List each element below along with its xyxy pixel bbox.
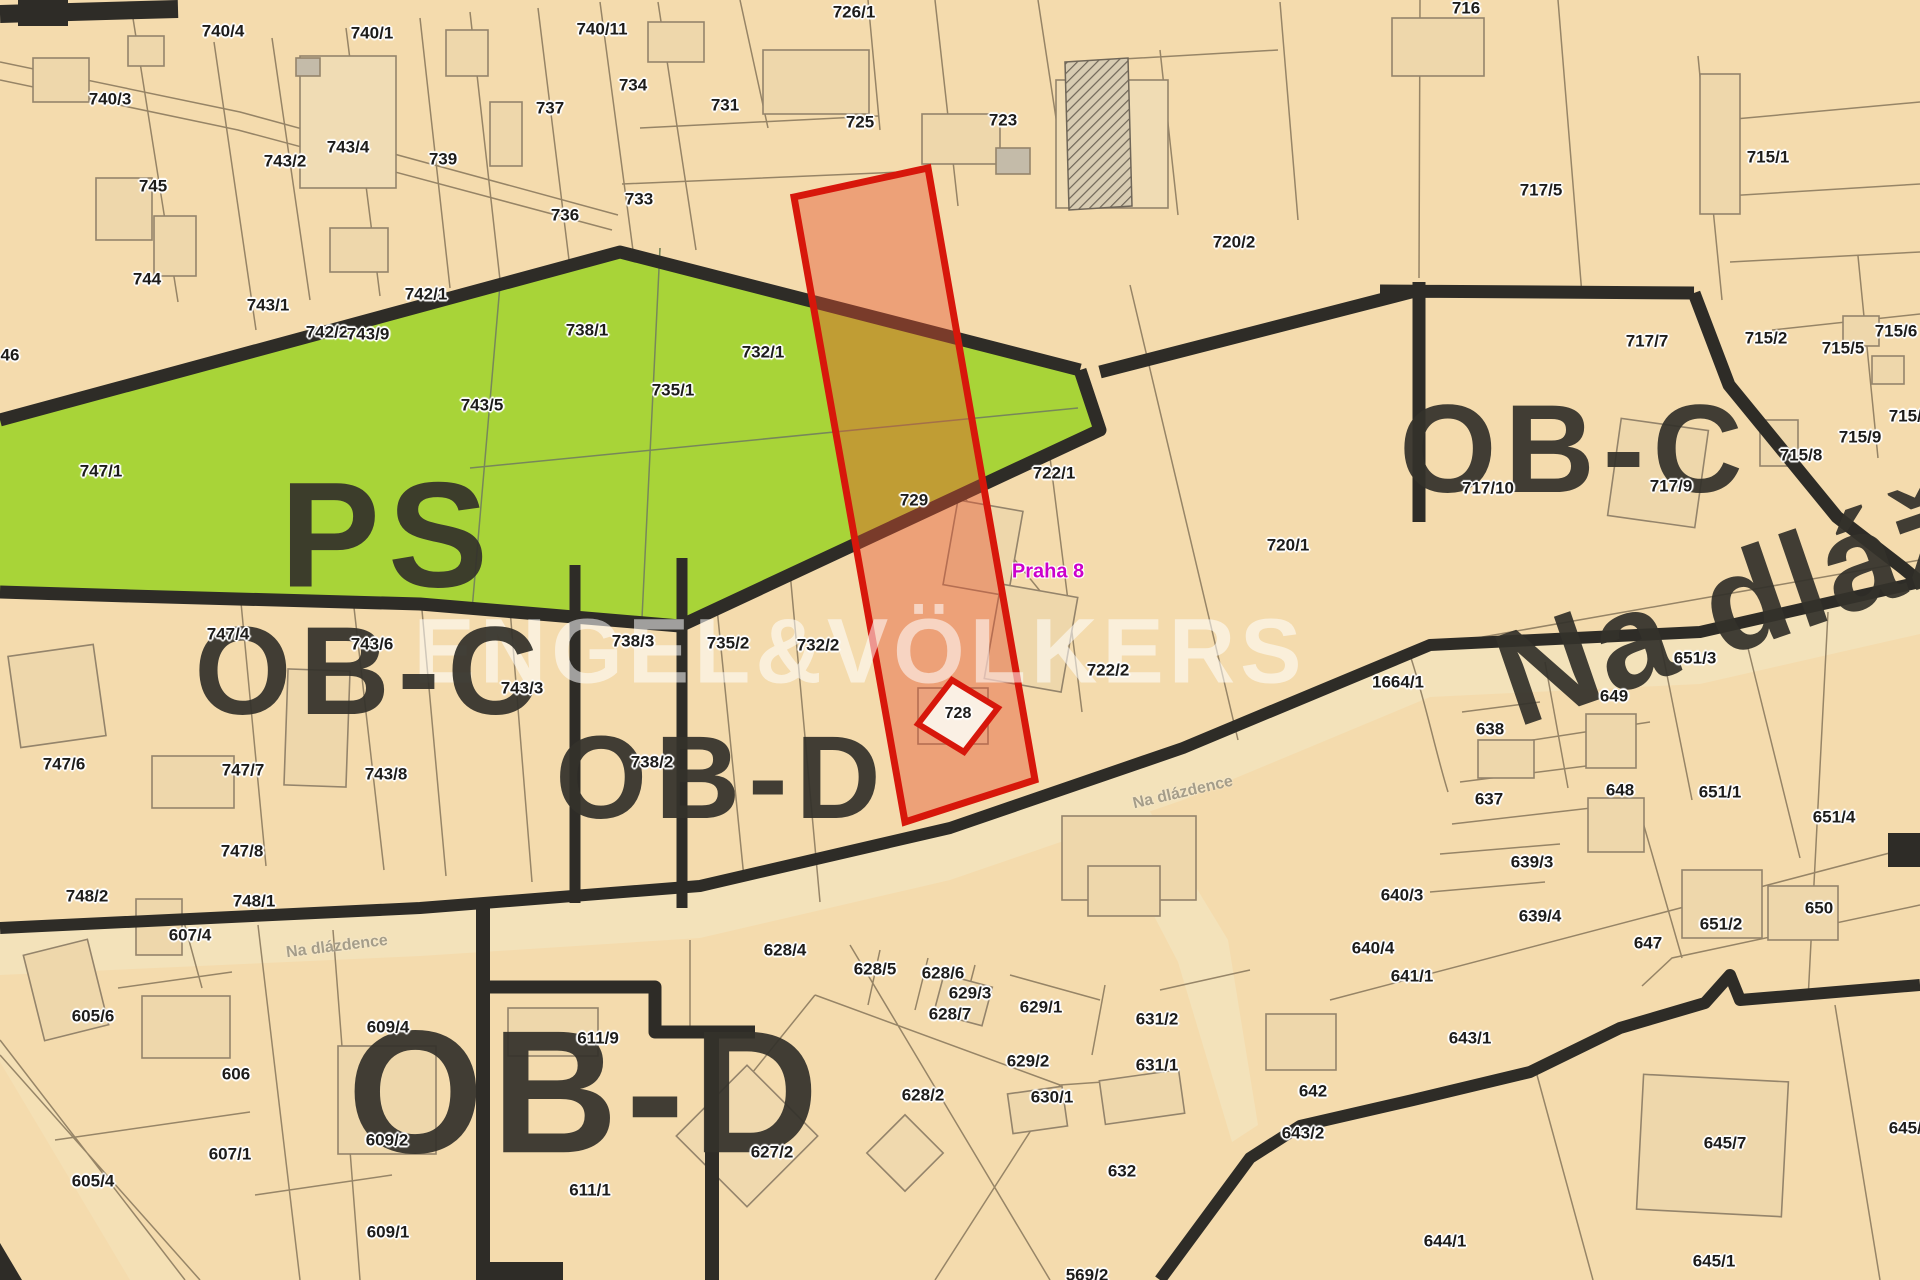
parcel-label: 609/2 xyxy=(366,1132,409,1149)
parcel-label: 605/4 xyxy=(72,1173,115,1190)
parcel-label: 627/2 xyxy=(751,1144,794,1161)
parcel-label: 743/3 xyxy=(501,680,544,697)
district-label: Praha 8 xyxy=(1012,561,1084,584)
parcel-label: 651/2 xyxy=(1700,916,1743,933)
parcel-label: 649 xyxy=(1600,688,1628,705)
parcel-label: 629/3 xyxy=(949,985,992,1002)
parcel-label: 734 xyxy=(619,77,647,94)
parcel-label: 743/6 xyxy=(351,636,394,653)
parcel-label: 647 xyxy=(1634,935,1662,952)
parcel-label: 628/2 xyxy=(902,1087,945,1104)
parcel-label: 737 xyxy=(536,100,564,117)
parcel-label: 643/1 xyxy=(1449,1030,1492,1047)
parcel-label: 607/1 xyxy=(209,1146,252,1163)
parcel-label: 651/4 xyxy=(1813,809,1856,826)
parcel-label: 736 xyxy=(551,207,579,224)
parcel-label: 643/2 xyxy=(1282,1125,1325,1142)
parcel-label: 728 xyxy=(945,706,972,722)
parcel-label: 732/1 xyxy=(742,344,785,361)
parcel-label: 651/1 xyxy=(1699,784,1742,801)
parcel-label: 569/2 xyxy=(1066,1267,1109,1280)
parcel-label: 606 xyxy=(222,1066,250,1083)
parcel-label: 645/1 xyxy=(1889,1120,1920,1137)
parcel-label: 715/3 xyxy=(1889,408,1920,425)
parcel-label: 743/9 xyxy=(347,326,390,343)
parcel-label: 731 xyxy=(711,97,739,114)
parcel-label: 715/1 xyxy=(1747,149,1790,166)
parcel-label: 738/3 xyxy=(612,633,655,650)
parcel-label: 740/3 xyxy=(89,91,132,108)
parcel-label: 46 xyxy=(1,347,20,364)
parcel-label: 738/1 xyxy=(566,322,609,339)
parcel-label: 630/1 xyxy=(1031,1089,1074,1106)
parcel-label: 748/1 xyxy=(233,893,276,910)
parcel-label: 743/1 xyxy=(247,297,290,314)
parcel-label: 611/1 xyxy=(569,1182,611,1199)
parcel-label: 632 xyxy=(1108,1163,1136,1180)
parcel-label: 629/1 xyxy=(1020,999,1063,1016)
watermark: ENGEL&VÖLKERS xyxy=(413,600,1306,705)
parcel-label: 645/7 xyxy=(1704,1135,1747,1152)
parcel-label: 717/7 xyxy=(1626,333,1669,350)
parcel-label: 717/5 xyxy=(1520,182,1563,199)
parcel-label: 609/1 xyxy=(367,1224,410,1241)
parcel-label: 629/2 xyxy=(1007,1053,1050,1070)
parcel-label: 639/4 xyxy=(1519,908,1562,925)
parcel-label: 739 xyxy=(429,151,457,168)
parcel-label: 742/1 xyxy=(405,286,448,303)
parcel-label: 720/1 xyxy=(1267,537,1310,554)
zone-label-ps: PS xyxy=(280,468,496,603)
parcel-label: 609/4 xyxy=(367,1019,410,1036)
parcel-label: 717/10 xyxy=(1462,480,1514,497)
parcel-label: 717/9 xyxy=(1650,478,1693,495)
parcel-label: 743/2 xyxy=(264,153,307,170)
parcel-label: 745 xyxy=(139,178,167,195)
hatched-area xyxy=(1065,58,1132,210)
parcel-label: 607/4 xyxy=(169,927,212,944)
parcel-label: 748/2 xyxy=(66,888,109,905)
parcel-label: 747/1 xyxy=(80,463,123,480)
parcel-label: 740/4 xyxy=(202,23,245,40)
parcel-label: 725 xyxy=(846,114,874,131)
parcel-label: 722/2 xyxy=(1087,662,1130,679)
parcel-label: 628/5 xyxy=(854,961,897,978)
parcel-label: 628/7 xyxy=(929,1006,972,1023)
parcel-label: 743/8 xyxy=(365,766,408,783)
parcel-label: 743/5 xyxy=(461,397,504,414)
parcel-label: 637 xyxy=(1475,791,1503,808)
map-canvas[interactable]: ENGEL&VÖLKERS PS OB-C OB-C OB-D OB-D Na … xyxy=(0,0,1920,1280)
parcel-label: 747/4 xyxy=(207,626,250,643)
parcel-label: 738/2 xyxy=(631,754,674,771)
parcel-label: 716 xyxy=(1452,0,1480,17)
parcel-label: 740/11 xyxy=(576,21,627,38)
parcel-label: 735/2 xyxy=(707,635,750,652)
parcel-label: 641/1 xyxy=(1391,968,1434,985)
parcel-label: 648 xyxy=(1606,782,1634,799)
parcel-label: 640/4 xyxy=(1352,940,1395,957)
parcel-label: 715/2 xyxy=(1745,330,1788,347)
parcel-label: 715/9 xyxy=(1839,429,1882,446)
parcel-label: 747/7 xyxy=(222,762,265,779)
parcel-label: 715/5 xyxy=(1822,340,1865,357)
parcel-label: 628/6 xyxy=(922,965,965,982)
zone-label-obc-right: OB-C xyxy=(1399,394,1750,507)
parcel-label: 744 xyxy=(133,271,161,288)
parcel-label: 740/1 xyxy=(351,25,394,42)
parcel-label: 715/8 xyxy=(1780,447,1823,464)
zone-label-obd-mid: OB-D xyxy=(555,725,889,831)
parcel-label: 747/6 xyxy=(43,756,86,773)
parcel-label: 747/8 xyxy=(221,843,264,860)
parcel-label: 605/6 xyxy=(72,1008,115,1025)
parcel-label: 645/1 xyxy=(1693,1253,1736,1270)
parcel-label: 733 xyxy=(625,191,653,208)
parcel-label: 732/2 xyxy=(797,637,840,654)
parcel-label: 729 xyxy=(900,492,928,509)
parcel-label: 735/1 xyxy=(652,382,695,399)
parcel-label: 743/4 xyxy=(327,139,370,156)
parcel-label: 640/3 xyxy=(1381,887,1424,904)
parcel-label: 726/1 xyxy=(833,4,876,21)
parcel-label: 631/1 xyxy=(1136,1057,1179,1074)
parcel-label: 720/2 xyxy=(1213,234,1256,251)
parcel-label: 638 xyxy=(1476,721,1504,738)
parcel-label: 1664/1 xyxy=(1372,674,1424,691)
parcel-label: 723 xyxy=(989,112,1017,129)
parcel-label: 651/3 xyxy=(1674,650,1717,667)
parcel-label: 611/9 xyxy=(577,1030,619,1047)
parcel-label: 742/2 xyxy=(306,324,349,341)
parcel-label: 631/2 xyxy=(1136,1011,1179,1028)
parcel-label: 715/6 xyxy=(1875,323,1918,340)
parcel-label: 650 xyxy=(1805,900,1833,917)
parcel-label: 722/1 xyxy=(1033,465,1076,482)
parcel-label: 642 xyxy=(1299,1083,1327,1100)
parcel-label: 644/1 xyxy=(1424,1233,1467,1250)
parcel-label: 639/3 xyxy=(1511,854,1554,871)
parcel-label: 628/4 xyxy=(764,942,807,959)
